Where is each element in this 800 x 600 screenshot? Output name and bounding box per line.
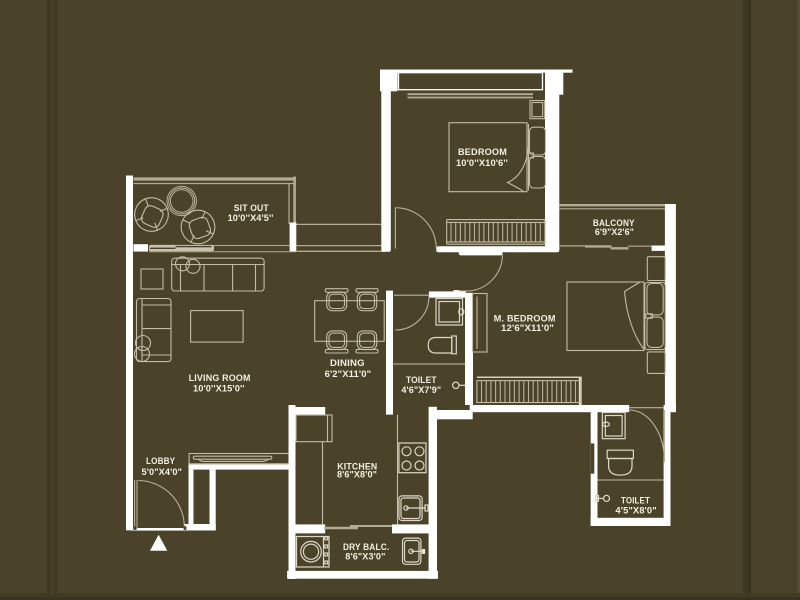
svg-text:10'0''X4'5'': 10'0''X4'5'' xyxy=(228,213,274,223)
svg-text:6'2"X11'0": 6'2"X11'0" xyxy=(325,369,372,379)
svg-text:BEDROOM: BEDROOM xyxy=(458,147,507,158)
svg-text:4'5"X8'0": 4'5"X8'0" xyxy=(615,506,656,516)
svg-text:5'0"X4'0": 5'0"X4'0" xyxy=(142,467,183,477)
svg-text:LOBBY: LOBBY xyxy=(146,456,176,467)
svg-text:4'6"X7'9": 4'6"X7'9" xyxy=(401,385,441,395)
svg-text:12'6"X11'0": 12'6"X11'0" xyxy=(501,323,554,333)
svg-text:6'9"X2'6": 6'9"X2'6" xyxy=(595,227,634,237)
svg-text:DINING: DINING xyxy=(330,358,365,369)
svg-text:10'0''X15'0'': 10'0''X15'0'' xyxy=(193,383,245,393)
svg-text:8'6"X3'0": 8'6"X3'0" xyxy=(345,552,385,562)
svg-text:10'0''X10'6'': 10'0''X10'6'' xyxy=(456,158,508,168)
svg-text:8'6"X8'0": 8'6"X8'0" xyxy=(337,470,377,480)
